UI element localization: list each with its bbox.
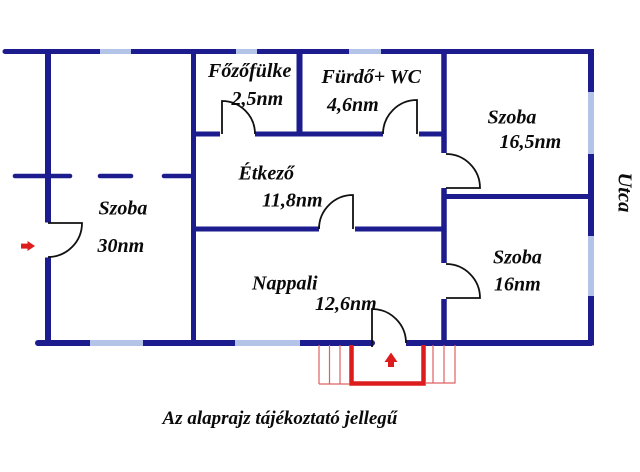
svg-text:12,6nm: 12,6nm	[315, 293, 377, 315]
svg-text:Szoba: Szoba	[488, 107, 537, 129]
svg-text:Utca: Utca	[614, 173, 636, 213]
svg-text:Szoba: Szoba	[99, 198, 148, 220]
svg-text:4,6nm: 4,6nm	[326, 94, 379, 116]
svg-text:Az alaprajz tájékoztató jelleg: Az alaprajz tájékoztató jellegű	[162, 408, 399, 429]
svg-text:Fürdő+ WC: Fürdő+ WC	[321, 66, 422, 88]
svg-text:Étkező: Étkező	[238, 162, 297, 185]
svg-text:11,8nm: 11,8nm	[262, 190, 323, 212]
svg-text:Nappali: Nappali	[251, 273, 318, 295]
svg-text:Szoba: Szoba	[493, 247, 542, 269]
svg-text:2,5nm: 2,5nm	[231, 88, 284, 110]
svg-text:30nm: 30nm	[97, 235, 145, 257]
svg-text:16nm: 16nm	[494, 274, 541, 296]
svg-text:16,5nm: 16,5nm	[500, 131, 562, 153]
svg-text:Főzőfülke: Főzőfülke	[207, 60, 291, 82]
